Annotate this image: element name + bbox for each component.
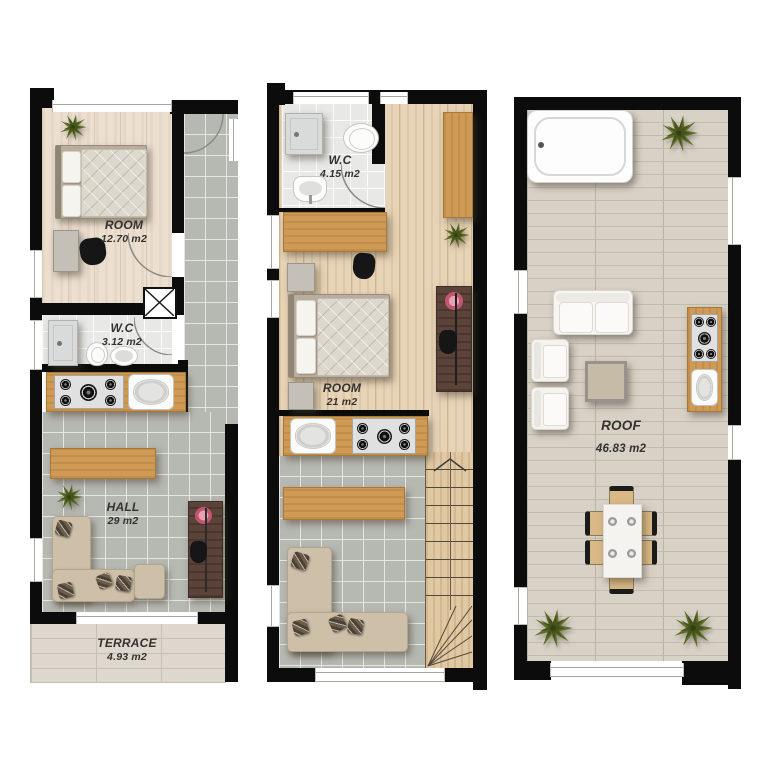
armchair: [531, 339, 569, 382]
wall: [514, 97, 741, 110]
tub-rim: [534, 117, 626, 176]
tub-faucet: [538, 142, 544, 148]
wall: [682, 661, 741, 685]
dining-chair: [585, 511, 605, 536]
coffee-table: [585, 361, 627, 402]
plant-icon: [531, 606, 575, 650]
sofa: [553, 290, 633, 335]
room-area: 46.83 m2: [566, 442, 676, 456]
armchair: [531, 387, 569, 430]
window: [514, 270, 527, 314]
plant-icon: [658, 112, 700, 154]
plant-icon: [671, 606, 715, 650]
gas-stove: [691, 314, 718, 362]
roof-floor-plan: ROOF 46.83 m2: [0, 0, 768, 768]
dining-chair: [585, 540, 605, 565]
window: [728, 425, 741, 460]
dining-table: [603, 504, 642, 578]
sliding-door: [550, 663, 684, 677]
window: [728, 177, 741, 245]
room-name: ROOF: [566, 418, 676, 435]
bathtub: [527, 110, 633, 183]
floor-plans-canvas: ROOM 12.70 m2 W.C 3.12 m2 HALL 29 m2 TER…: [0, 0, 768, 768]
window: [514, 587, 527, 625]
wall: [514, 661, 551, 680]
kitchen-sink: [691, 369, 718, 406]
room-label: ROOF 46.83 m2: [566, 418, 676, 456]
